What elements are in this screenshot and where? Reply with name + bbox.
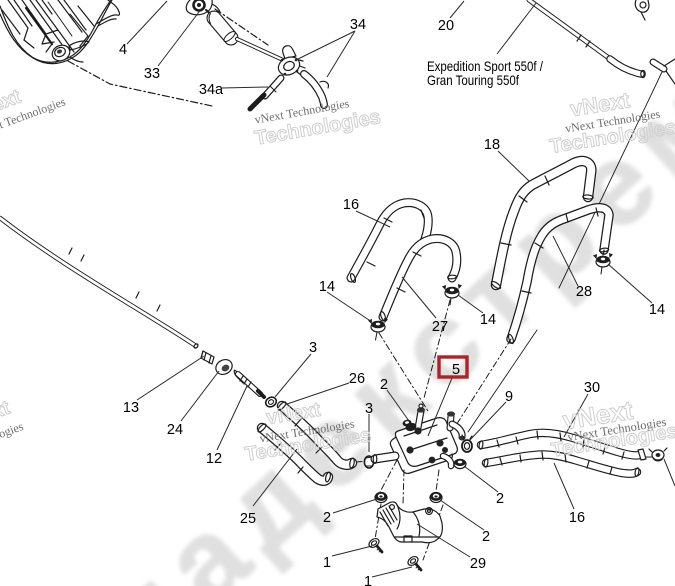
svg-text:2: 2	[380, 377, 388, 393]
svg-text:18: 18	[484, 137, 500, 153]
svg-text:2: 2	[482, 529, 490, 545]
svg-text:14: 14	[649, 302, 665, 318]
svg-text:5: 5	[452, 362, 460, 378]
svg-text:1: 1	[323, 555, 331, 571]
svg-text:25: 25	[240, 511, 256, 527]
svg-text:14: 14	[319, 279, 335, 295]
svg-text:1: 1	[364, 574, 372, 586]
svg-text:3: 3	[365, 401, 373, 417]
svg-text:4: 4	[119, 42, 127, 58]
svg-text:28: 28	[576, 284, 592, 300]
svg-text:2: 2	[323, 510, 331, 526]
svg-text:16: 16	[569, 510, 585, 526]
svg-text:29: 29	[470, 556, 486, 572]
svg-text:3: 3	[309, 340, 317, 356]
svg-text:26: 26	[349, 371, 365, 387]
svg-text:12: 12	[206, 451, 222, 467]
svg-text:16: 16	[343, 197, 359, 213]
svg-text:24: 24	[167, 422, 183, 438]
svg-text:14: 14	[480, 312, 496, 328]
svg-text:20: 20	[438, 18, 454, 34]
svg-text:Gran Touring 550f: Gran Touring 550f	[427, 72, 519, 88]
svg-text:9: 9	[505, 389, 513, 405]
svg-text:13: 13	[123, 400, 139, 416]
svg-text:2: 2	[496, 491, 504, 507]
svg-text:33: 33	[144, 66, 160, 82]
svg-text:34a: 34a	[199, 82, 224, 98]
svg-text:34: 34	[350, 17, 366, 33]
svg-text:27: 27	[432, 319, 448, 335]
svg-text:30: 30	[584, 380, 600, 396]
